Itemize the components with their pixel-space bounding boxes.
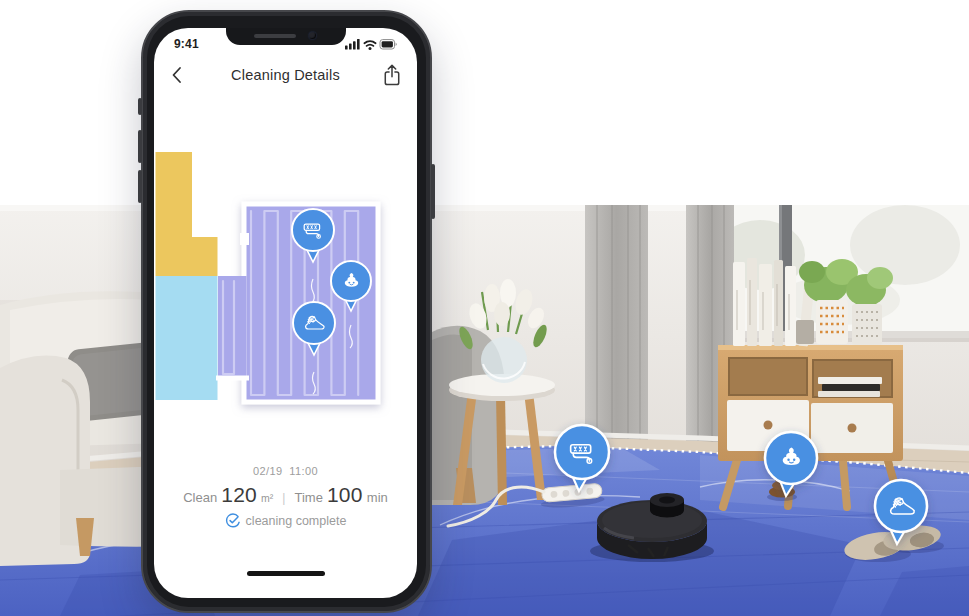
status-text: cleaning complete: [246, 514, 347, 528]
share-button[interactable]: [379, 62, 405, 88]
phone-mockup: 9:41: [141, 10, 432, 613]
clean-area-unit: m²: [261, 492, 273, 504]
stats-separator: |: [282, 491, 285, 505]
home-indicator[interactable]: [247, 571, 325, 576]
check-circle-icon: [225, 512, 241, 529]
power-button: [431, 164, 435, 219]
battery-icon: [380, 39, 397, 48]
cleaning-datetime: 02/19 11:00: [154, 465, 417, 477]
back-button[interactable]: [166, 63, 190, 87]
volume-up-button: [138, 130, 142, 163]
phone-screen: 9:41: [154, 28, 417, 598]
chevron-left-icon: [174, 68, 181, 82]
map-room-cyan[interactable]: [156, 276, 218, 400]
wifi-icon: [364, 41, 375, 50]
clean-area-value: 120: [221, 483, 257, 507]
time-unit: min: [367, 490, 388, 505]
cleaning-stats: Clean 120 m² | Time 100 min: [154, 483, 417, 507]
volume-down-button: [138, 170, 142, 203]
time-value: 100: [327, 483, 363, 507]
map-room-yellow[interactable]: [156, 152, 193, 237]
books-in-shelf: [818, 377, 882, 397]
page-title: Cleaning Details: [154, 67, 417, 83]
share-icon: [385, 65, 398, 84]
clean-label: Clean: [183, 490, 217, 505]
time-label: Time: [294, 490, 322, 505]
cleaning-summary: 02/19 11:00 Clean 120 m² | Time 100 min …: [154, 465, 417, 529]
nav-bar: Cleaning Details: [154, 60, 417, 90]
page: 9:41: [0, 0, 969, 616]
cellular-icon: [345, 39, 360, 50]
mute-switch: [138, 98, 142, 115]
status-icons: [345, 38, 397, 51]
status-time: 9:41: [174, 37, 199, 51]
cleaning-status: cleaning complete: [154, 512, 417, 529]
map-door-gap: [240, 233, 249, 245]
status-bar: 9:41: [154, 36, 417, 52]
